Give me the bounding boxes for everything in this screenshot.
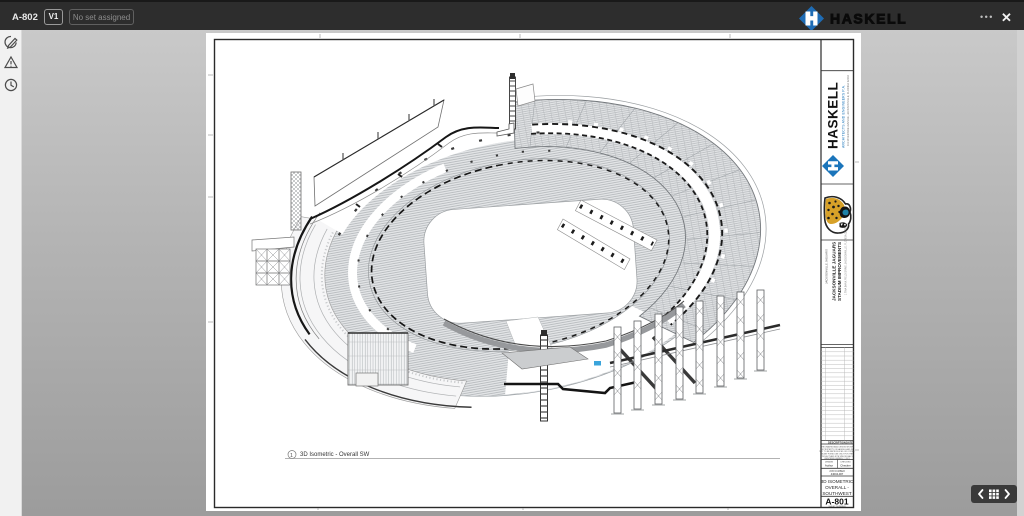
- svg-text:DATE: DATE: [846, 440, 853, 444]
- svg-text:44004-007: 44004-007: [831, 472, 844, 476]
- svg-text:111 RIVERSIDE AVENUE, JACKSONV: 111 RIVERSIDE AVENUE, JACKSONVILLE, FLOR…: [846, 75, 850, 146]
- svg-text:3D ISOMETRIC: 3D ISOMETRIC: [821, 479, 854, 484]
- svg-text:STADIUM IMPROVEMENTS: STADIUM IMPROVEMENTS: [837, 242, 842, 301]
- svg-text:1: 1: [290, 453, 293, 459]
- svg-text:ARCHITECTS AND ENGINEERS P.A.: ARCHITECTS AND ENGINEERS P.A.: [842, 85, 846, 148]
- svg-text:JACKSONVILLE JAGUARS: JACKSONVILLE JAGUARS: [825, 249, 829, 284]
- svg-text:SOUTHWEST: SOUTHWEST: [822, 491, 852, 496]
- svg-text:HASKELL: HASKELL: [826, 82, 841, 149]
- svg-text:Checker: Checker: [840, 464, 850, 468]
- svg-text:OVERALL -: OVERALL -: [825, 485, 849, 490]
- svg-text:DESCRIPTION: DESCRIPTION: [828, 440, 846, 444]
- svg-text:Author: Author: [825, 464, 833, 468]
- svg-text:A-801: A-801: [825, 497, 848, 507]
- svg-text:1 TIAA BANK FIELD DRIVE, JACKS: 1 TIAA BANK FIELD DRIVE, JACKSONVILLE, F…: [845, 227, 848, 295]
- svg-text:JACKSONVILLE JAGUARS: JACKSONVILLE JAGUARS: [832, 242, 837, 301]
- svg-text:SHEET NUMBER: SHEET NUMBER: [828, 506, 846, 508]
- svg-text:HASKELL: HASKELL: [830, 11, 907, 27]
- svg-text:3D Isometric - Overall SW: 3D Isometric - Overall SW: [300, 452, 370, 458]
